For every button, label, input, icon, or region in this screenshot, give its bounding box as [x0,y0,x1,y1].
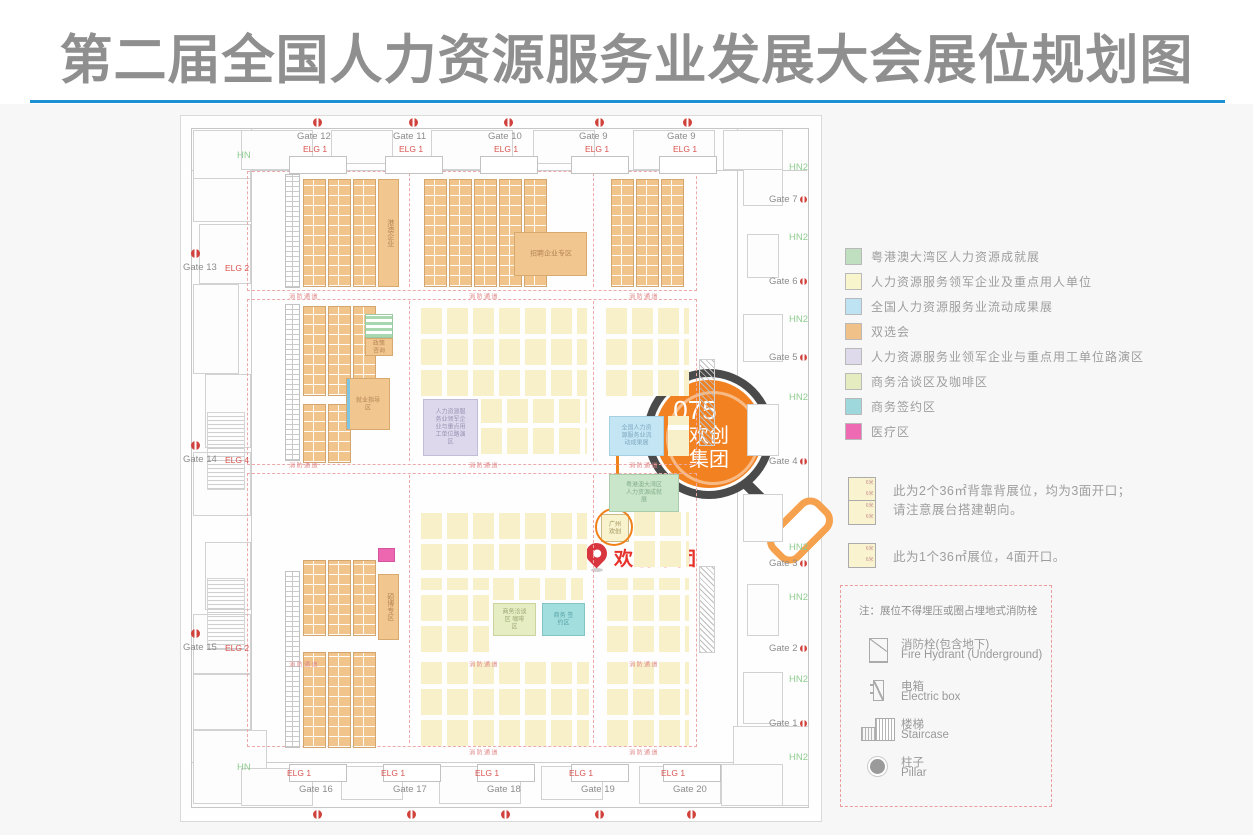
note-booth-square: 6米6米 [848,477,876,502]
room-outline [747,234,779,278]
gate-opening [571,156,629,174]
legend-swatch [845,398,862,415]
gate-opening [480,156,538,174]
booth-cluster [668,416,689,456]
gate-elg-label: ELG 1 [661,768,685,778]
booth-cluster [606,306,689,396]
hn-label: HN [237,150,251,161]
jobfair-grid-cluster [353,560,376,636]
hn2-label: HN2 [789,674,808,685]
booth-cluster [634,512,689,567]
zone-label: 全国人力资源服务业流动成果展 [621,425,653,448]
zone-dashed-divider [409,173,411,287]
policy-stripes [365,314,393,338]
gate-right-label: Gate 5 [769,352,807,363]
legend-label: 商务洽谈区及咖啡区 [871,373,988,390]
zone-zhengce: 政策咨询 [365,338,393,356]
door-icon [800,560,807,567]
zone-label: 人力资源服务业领军企业与重点用工单位路演区 [435,409,467,447]
symbols-box: 注：展位不得埋压或圈占埋地式消防栓 消防栓(包含地下)Fire Hydrant … [840,585,1052,807]
room-outline [743,494,783,542]
fire-lane-label: 消防通道 [629,659,659,668]
booth-cluster [481,399,587,454]
dimension-label: 6米 [866,544,874,552]
booth-cluster [493,578,583,600]
jobfair-grid-cluster [328,179,351,287]
fire-lane-label: 消防通道 [469,659,499,668]
zone-dashed-divider [593,301,595,461]
legend-swatch [845,298,862,315]
ladder-booth-strip [285,174,300,288]
zone-label: 粤港澳大湾区 人力资源成就展 [624,482,665,505]
gate-left-label: Gate 13 [183,262,217,273]
gate-bottom-label: Gate 16 [299,784,333,795]
note-booth-square: 6米6米 [848,543,876,568]
hn2-label: HN2 [789,542,808,553]
room-outline [743,672,783,724]
gate-elg-label: ELG 1 [673,144,697,154]
note-booth-square: 6米6米 [848,500,876,525]
booth-cluster [607,578,689,652]
gate-left-label: Gate 15 [183,642,217,653]
room-outline [193,674,251,730]
zone-qiatan: 商务洽谈区 咖啡区 [493,603,536,636]
gate-right-label: Gate 7 [769,194,807,205]
staircase-icon [875,718,895,741]
legend-label: 粤港澳大湾区人力资源成就展 [871,248,1040,265]
legend-swatch [845,323,862,340]
jobfair-grid-cluster [424,179,447,287]
dimension-label: 6米 [866,501,874,509]
legend-label: 全国人力资源服务业流动成果展 [871,298,1053,315]
gate-top-label: Gate 9 [579,131,608,142]
room-outline [199,224,251,284]
legend-item: 医疗区 [845,423,910,440]
door-icon [800,720,807,727]
door-icon [313,810,322,819]
page-title: 第二届全国人力资源服务业发展大会展位规划图 [0,18,1253,94]
gate-right-label: Gate 4 [769,456,807,467]
room-outline [747,404,779,456]
legend-swatch [845,273,862,290]
legend-item: 商务签约区 [845,398,936,415]
zone-qiye_zone: 招聘企业专区 [514,232,587,276]
floorplan: 广州欢创 欢创集团 075 欢创 集团 港澳企业招聘企业专区政策咨询就业指导区人… [180,115,822,822]
symbol-label-en: Staircase [901,729,949,741]
zone-label: 商务 签约区 [551,612,576,627]
note-text: 此为1个36㎡展位，4面开口。 [893,546,1066,565]
door-icon [409,118,418,127]
gate-opening [289,156,347,174]
zone-label: 港澳企业 [384,219,392,247]
gate-right-label: Gate 3 [769,558,807,569]
door-icon [683,118,692,127]
jobfair-grid-cluster [328,652,351,748]
gate-elg-label: ELG 1 [287,768,311,778]
symbol-items: 消防栓(包含地下)Fire Hydrant (Underground)电箱Ele… [841,586,1051,806]
booth-cluster [421,512,587,570]
stairs-hatch [699,359,715,446]
gate-elg-label: ELG 1 [494,144,518,154]
symbol-item: 楼梯Staircase [861,716,1041,752]
room-outline [723,130,783,170]
gate-elg-label: ELG 1 [569,768,593,778]
booth-cluster [421,578,489,652]
booth-notes: 6米6米6米6米此为2个36㎡背靠背展位，均为3面开口；请注意展台搭建朝向。6米… [843,470,1243,580]
dimension-label: 6米 [866,512,874,520]
door-icon [800,645,807,652]
room-outline [193,284,239,374]
legend-swatch [845,373,862,390]
fire-lane-label: 消防通道 [289,659,319,668]
door-icon [313,118,322,127]
door-icon [800,458,807,465]
dimension-label: 6米 [866,555,874,563]
door-icon [687,810,696,819]
gate-opening [385,156,443,174]
door-icon [191,249,200,258]
door-icon [800,354,807,361]
jobfair-grid-cluster [328,560,351,636]
jobfair-grid-cluster [636,179,659,287]
gate-right-label: Gate 2 [769,643,807,654]
zone-label: 招聘企业专区 [530,250,572,258]
gate-elg-label: ELG 2 [225,263,249,273]
legend-swatch [845,348,862,365]
room-outline [747,584,779,636]
electric-box-icon [873,680,884,701]
jobfair-grid-cluster [303,306,326,396]
door-icon [191,629,200,638]
symbol-label-en: Fire Hydrant (Underground) [901,649,1042,661]
legend-label: 人力资源服务领军企业及重点用人单位 [871,273,1092,290]
fire-lane-label: 消防通道 [469,460,499,469]
legend-label: 双选会 [871,323,910,340]
gate-elg-label: ELG 1 [381,768,405,778]
legend-item: 人力资源服务业领军企业与重点用工单位路演区 [845,348,1144,365]
legend-item: 双选会 [845,323,910,340]
zone-jiuye: 就业指导区 [346,378,390,430]
door-icon [595,118,604,127]
legend-item: 人力资源服务领军企业及重点用人单位 [845,273,1092,290]
zone-luyan: 人力资源服务业领军企业与重点用工单位路演区 [423,399,478,456]
ladder-booth-strip [285,304,300,461]
legend-item: 粤港澳大湾区人力资源成就展 [845,248,1040,265]
jobfair-grid-cluster [661,179,684,287]
booth-cluster [607,662,689,746]
zone-qianyue: 商务 签约区 [542,603,585,636]
gate-elg-label: ELG 1 [585,144,609,154]
jobfair-grid-cluster [303,560,326,636]
symbol-item: 消防栓(包含地下)Fire Hydrant (Underground) [861,636,1041,672]
gate-bottom-label: Gate 17 [393,784,427,795]
legend-item: 全国人力资源服务业流动成果展 [845,298,1053,315]
legend-label: 商务签约区 [871,398,936,415]
jobfair-grid-cluster [353,652,376,748]
note-text: 此为2个36㎡背靠背展位，均为3面开口； [893,480,1131,499]
door-icon [800,278,807,285]
bottom-corridor-wall [191,762,807,763]
title-underline [30,100,1225,103]
room-outline [721,764,783,806]
hn2-label: HN2 [789,392,808,403]
gate-elg-label: ELG 1 [399,144,423,154]
legend-swatch [845,423,862,440]
symbol-icon-cell [861,638,897,668]
gate-top-label: Gate 9 [667,131,696,142]
gate-bottom-label: Gate 18 [487,784,521,795]
fire-lane-label: 消防通道 [469,747,499,756]
gate-opening [659,156,717,174]
symbol-icon-cell [861,756,897,786]
door-icon [501,810,510,819]
zone-shuobo: 硕博专区 [378,574,399,640]
legend: 粤港澳大湾区人力资源成就展人力资源服务领军企业及重点用人单位全国人力资源服务业流… [845,248,1245,448]
fire-lane-label: 消防通道 [629,291,659,300]
hn2-label: HN2 [789,314,808,325]
stairs-hatch [699,566,715,653]
seating-rows [207,412,245,490]
hn2-label: HN2 [789,592,808,603]
gate-elg-label: ELG 2 [225,643,249,653]
jobfair-grid-cluster [303,179,326,287]
symbol-label-en: Pillar [901,767,927,779]
gate-right-label: Gate 1 [769,718,807,729]
symbol-label-en: Electric box [901,691,960,703]
zone-label: 政策咨询 [371,340,387,355]
fire-lane-label: 消防通道 [469,291,499,300]
zone-dashed-divider [593,173,595,287]
jobfair-grid-cluster [449,179,472,287]
fire-hydrant-icon [869,638,888,663]
hn2-label: HN2 [789,162,808,173]
seating-rows [207,578,245,650]
zone-dawan: 粤港澳大湾区 人力资源成就展 [609,474,679,512]
fire-lane-label: 消防通道 [629,460,659,469]
hn2-label: HN2 [789,752,808,763]
fire-lane-label: 消防通道 [629,747,659,756]
fire-lane-label: 消防通道 [289,291,319,300]
zone-dashed-divider [409,475,411,743]
note-text: 请注意展台搭建朝向。 [893,499,1023,518]
symbol-item: 柱子Pillar [861,754,1041,790]
jobfair-grid-cluster [303,404,326,463]
jobfair-grid-cluster [474,179,497,287]
zone-dashed-divider [593,475,595,743]
jobfair-grid-cluster [611,179,634,287]
legend-label: 医疗区 [871,423,910,440]
door-icon [504,118,513,127]
pillar-icon [870,759,885,774]
legend-item: 商务洽谈区及咖啡区 [845,373,988,390]
gate-right-label: Gate 6 [769,276,807,287]
zone-label: 硕博专区 [384,593,392,621]
dimension-label: 6米 [866,489,874,497]
medical-zone-block [378,548,395,562]
jobfair-grid-cluster [353,179,376,287]
gate-top-label: Gate 11 [393,131,426,142]
gate-top-label: Gate 10 [488,131,522,142]
gate-elg-label: ELG 1 [303,144,327,154]
legend-label: 人力资源服务业领军企业与重点用工单位路演区 [871,348,1144,365]
door-icon [191,441,200,450]
door-icon [800,196,807,203]
gate-top-label: Gate 12 [297,131,331,142]
room-outline [193,178,251,222]
zone-gangao: 港澳企业 [378,179,399,287]
gate-bottom-label: Gate 20 [673,784,707,795]
zone-liudong: 全国人力资源服务业流动成果展 [609,416,664,456]
symbol-icon-cell [861,680,897,710]
zone-label: 就业指导区 [355,397,380,412]
dimension-label: 6米 [866,478,874,486]
booth-cluster [421,662,589,746]
symbol-item: 电箱Electric box [861,678,1041,714]
hn2-label: HN2 [789,232,808,243]
symbol-icon-cell [861,718,897,748]
zone-label: 商务洽谈区 咖啡区 [502,608,527,631]
booth-cluster [421,306,587,396]
fire-lane-label: 消防通道 [289,460,319,469]
gate-bottom-label: Gate 19 [581,784,615,795]
gate-elg-label: ELG 4 [225,455,249,465]
gate-left-label: Gate 14 [183,454,217,465]
door-icon [595,810,604,819]
door-icon [407,810,416,819]
zone-dashed-divider [409,301,411,461]
gate-elg-label: ELG 1 [475,768,499,778]
legend-swatch [845,248,862,265]
hn-label: HN [237,762,251,773]
